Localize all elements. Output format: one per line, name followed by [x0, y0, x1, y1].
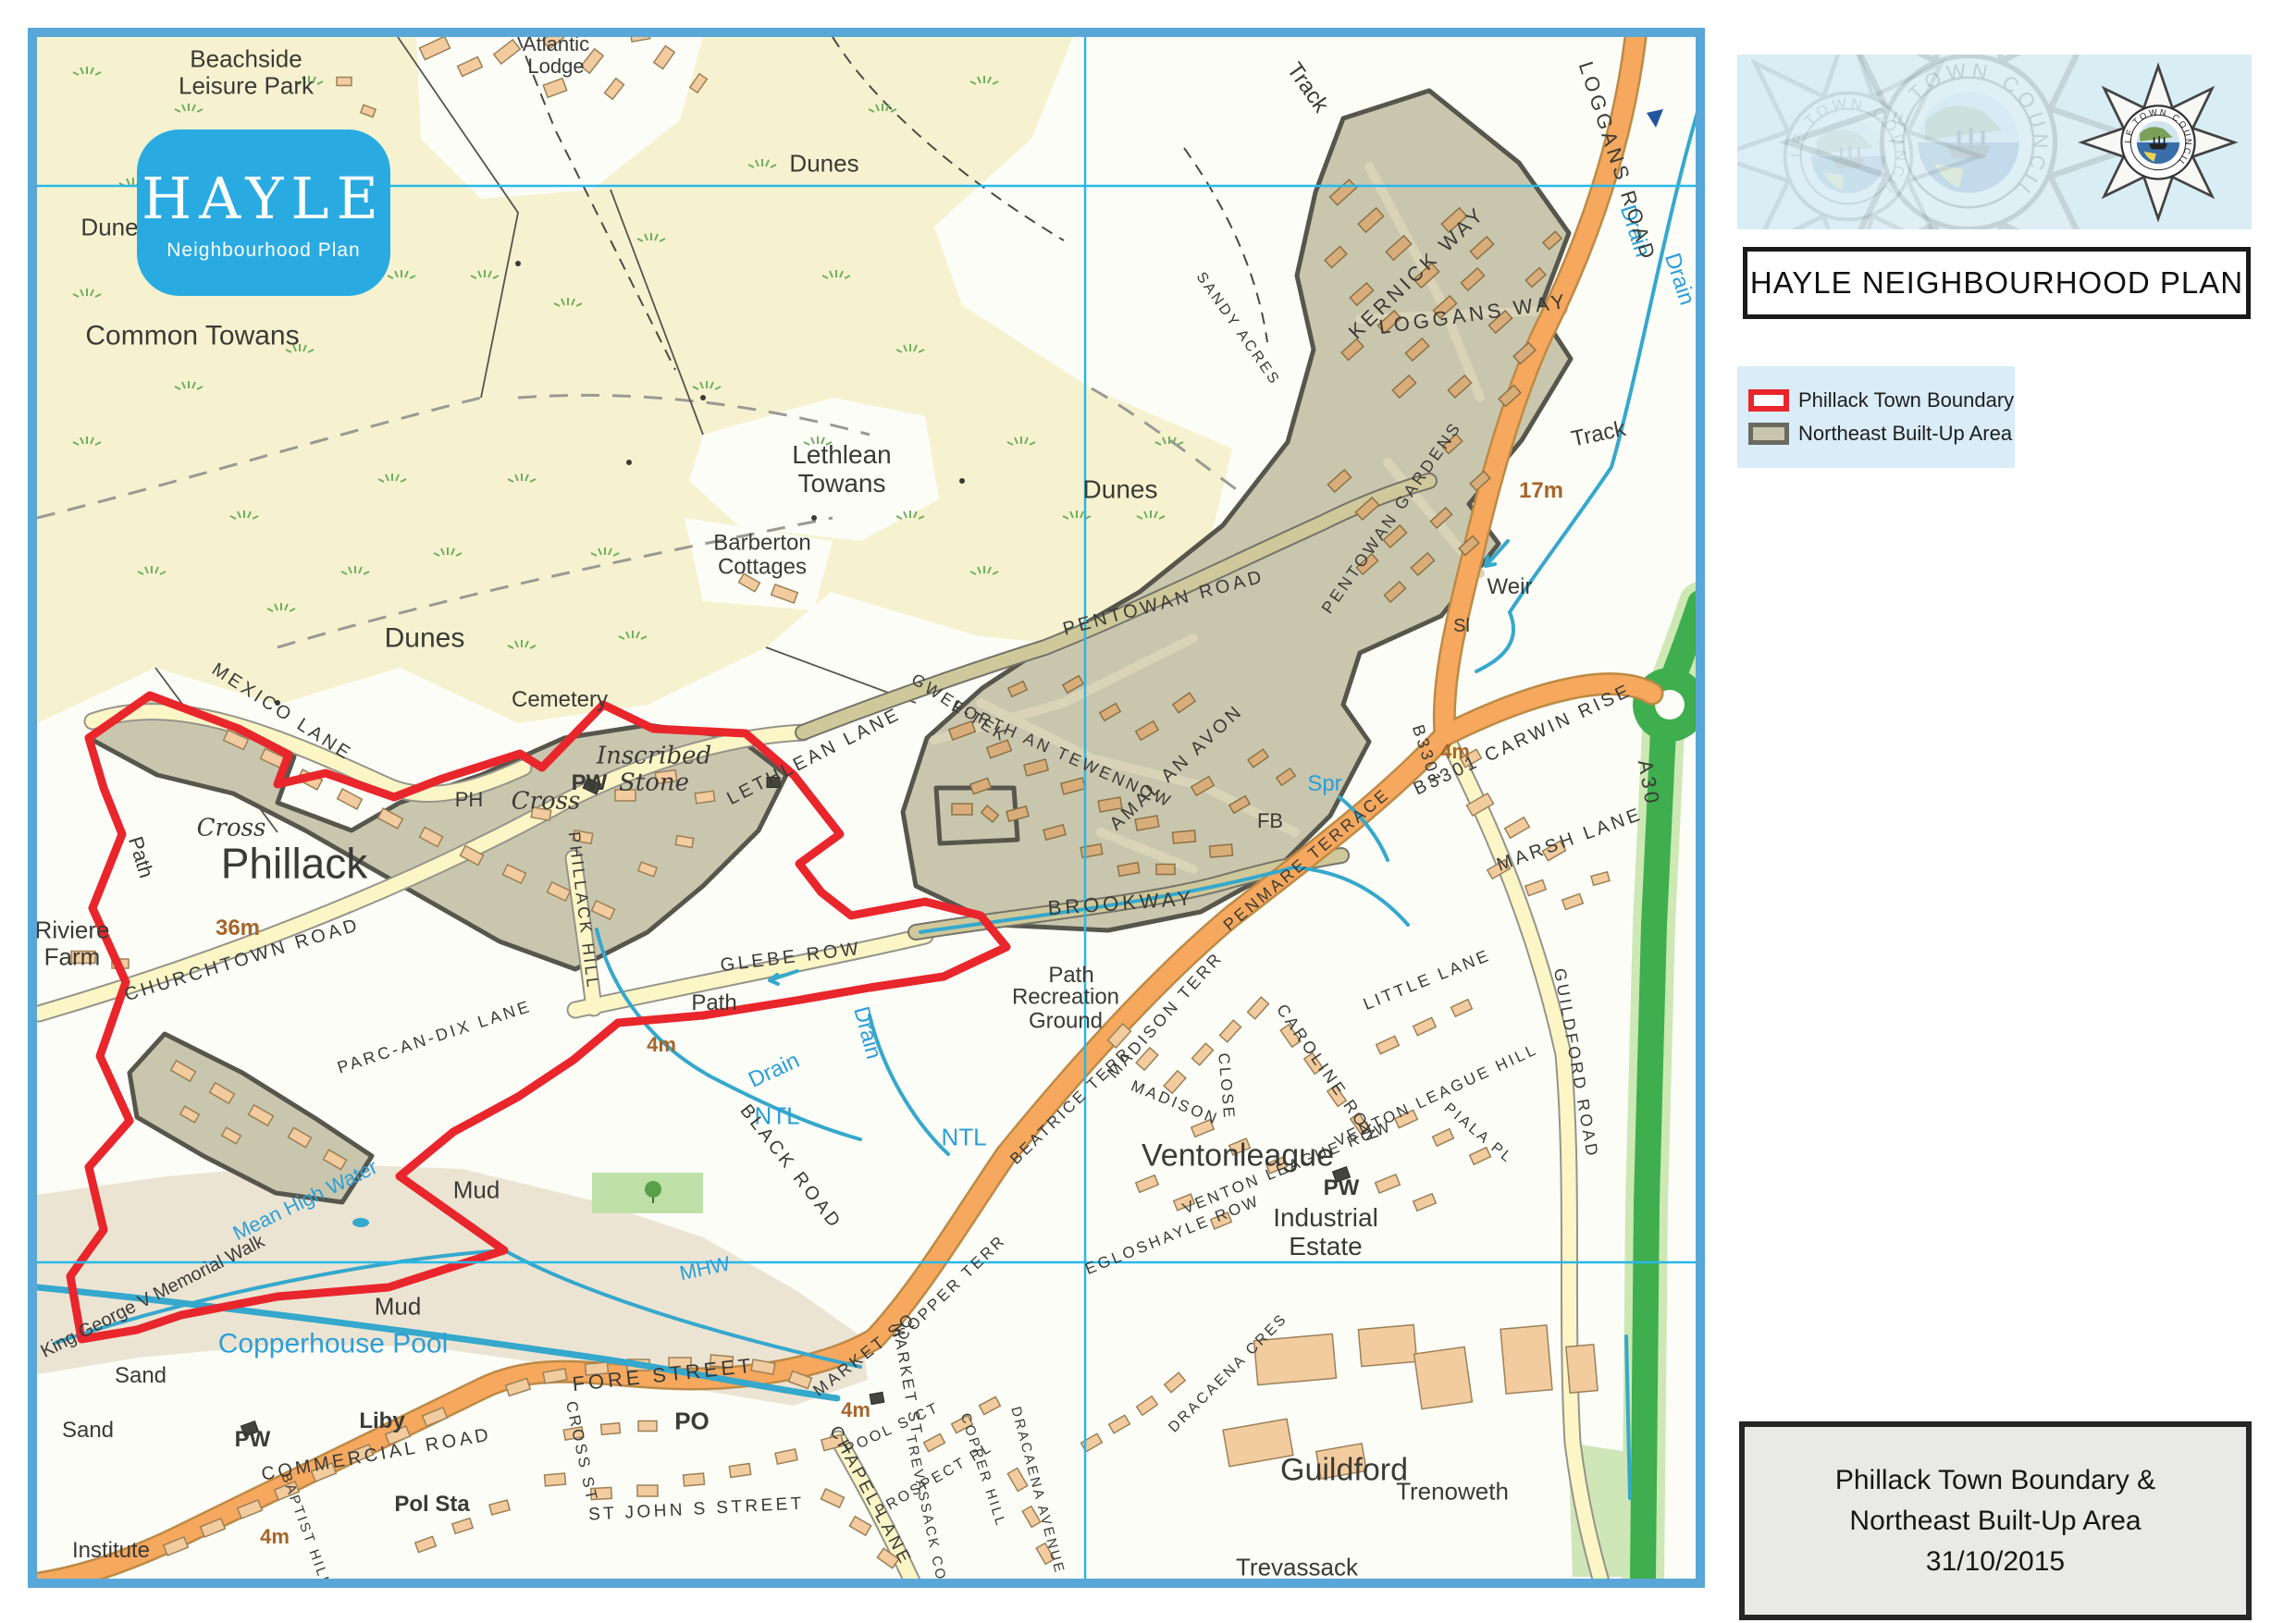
map-label: Drain	[1660, 251, 1696, 309]
map-label: Lethlean Towans	[792, 441, 891, 498]
map-label: FORE STREET	[571, 1355, 755, 1396]
map-label: 36m	[216, 916, 260, 941]
map-label: PENMARE TERRACE	[1220, 785, 1394, 935]
map-label: Inscribed Stone	[597, 743, 711, 795]
map-label: A30	[1634, 758, 1664, 808]
map-label: Industrial Estate	[1273, 1204, 1378, 1261]
map-label: Drain	[745, 1049, 803, 1093]
map-label: 4m	[647, 1034, 676, 1056]
map-label: CROSS ST	[562, 1400, 599, 1505]
map-label: Institute	[72, 1539, 150, 1563]
map-label: Track	[1281, 58, 1333, 117]
map-label: ST JOHN S STREET	[588, 1494, 806, 1525]
boundary-swatch-icon	[1748, 389, 1789, 412]
map-label: Mud	[453, 1177, 500, 1204]
footer-line: Phillack Town Boundary &	[1835, 1460, 2155, 1501]
legend-label: Phillack Town Boundary	[1798, 388, 2014, 412]
hayle-neighbourhood-plan-logo: HAYLE Neighbourhood Plan	[137, 129, 390, 296]
map-label: DRACAENA CRES	[1166, 1310, 1291, 1436]
map-label: 4m	[260, 1526, 290, 1548]
map-label: BROOKWAY	[1047, 887, 1195, 919]
map-label: Riviere Farm	[37, 916, 109, 969]
map-label: PENTOWAN GARDENS	[1319, 418, 1466, 617]
map-label: LITTLE LANE	[1361, 946, 1493, 1014]
map-label: Trevassack	[1236, 1555, 1358, 1579]
map-label: Recreation Ground	[1012, 986, 1119, 1035]
map-label: 4m	[841, 1399, 870, 1421]
map-label: Sl	[1453, 616, 1470, 636]
map-label: Barberton Cottages	[713, 532, 810, 581]
map-label: Path	[691, 991, 736, 1015]
map-label: Common Towans	[85, 321, 299, 351]
map-label: Drain	[848, 1004, 885, 1062]
town-council-banner	[1737, 55, 2252, 229]
map-label: Dunes	[385, 623, 465, 654]
map-label: MHW	[678, 1252, 733, 1285]
map-label: NTL	[941, 1125, 986, 1151]
map-label: Spr	[1307, 772, 1341, 796]
map-legend: Phillack Town Boundary Northeast Built-U…	[1737, 366, 2015, 468]
map-label: GUILDFORD ROAD	[1549, 967, 1601, 1161]
map-label: Liby	[359, 1409, 404, 1433]
map-label: Cross	[512, 789, 581, 816]
legend-item-boundary: Phillack Town Boundary	[1748, 388, 2015, 412]
map-label: Dunes	[789, 151, 858, 178]
map-label: LOGGANS ROAD	[1574, 59, 1660, 264]
map-label: AMAL AN AVON	[1105, 701, 1247, 835]
map-label: Dunes	[1083, 476, 1158, 505]
map-label: FB	[1257, 810, 1283, 832]
map-label: Copperhouse Pool	[218, 1329, 449, 1359]
map-label: Atlantic Lodge	[523, 37, 589, 78]
map-label: Cemetery	[512, 688, 608, 712]
map-label: LETHLEAN LANE	[723, 704, 904, 809]
map-label: Trenoweth	[1396, 1479, 1509, 1506]
map-label: MEXICO LANE	[208, 659, 356, 765]
map-label: Path	[124, 834, 157, 880]
map-label: Pol Sta	[394, 1493, 469, 1517]
map-label: Track	[1569, 417, 1627, 452]
map-label: PH	[455, 789, 484, 811]
legend-item-builtup: Northeast Built-Up Area	[1748, 422, 2015, 446]
map-label: Cross	[197, 816, 266, 842]
map-label: DRACAENA AVENUE	[1007, 1406, 1067, 1577]
sheet-title: HAYLE NEIGHBOURHOOD PLAN	[1743, 247, 2251, 319]
map-label: SANDY ACRES	[1192, 269, 1283, 388]
banner-graphic	[1737, 55, 2252, 229]
map-label: GLEBE ROW	[719, 939, 862, 977]
page: { "palette":{ "frame_blue":"#58a7d8","gr…	[0, 0, 2296, 1623]
logo-title: HAYLE	[137, 165, 390, 232]
map-label: 17m	[1519, 479, 1563, 503]
map-label: PENTOWAN ROAD	[1061, 566, 1267, 639]
map-label: Beachside Leisure Park	[179, 45, 314, 98]
map-label: Weir	[1487, 575, 1533, 599]
map-label: Sand	[62, 1419, 114, 1443]
map-label: PIALA PL	[1440, 1100, 1515, 1167]
map-label: Mean High Water	[229, 1156, 381, 1245]
map-label: Sand	[115, 1364, 167, 1388]
sheet-footer: Phillack Town Boundary & Northeast Built…	[1739, 1421, 2252, 1620]
map-label: MARSH LANE	[1494, 804, 1646, 875]
footer-line: Northeast Built-Up Area	[1849, 1501, 2141, 1542]
map-label: PHILLACK HILL	[564, 830, 602, 990]
map-label: PO	[674, 1408, 710, 1435]
map-label: Mud	[375, 1294, 422, 1321]
map-label: Phillack	[221, 841, 368, 888]
map-label: BEATRICE TERR	[1007, 1044, 1135, 1168]
map-label: PW	[235, 1428, 271, 1452]
logo-subtitle: Neighbourhood Plan	[137, 240, 390, 262]
map-label: MADISON	[1129, 1077, 1221, 1128]
map-label: EGLOSHAYLE ROW	[1083, 1192, 1263, 1278]
map-label: PARC-AN-DIX LANE	[336, 998, 535, 1078]
sheet-title-text: HAYLE NEIGHBOURHOOD PLAN	[1750, 265, 2243, 301]
map-label: PW	[1324, 1176, 1360, 1200]
footer-line: 31/10/2015	[1926, 1542, 2065, 1582]
legend-label: Northeast Built-Up Area	[1798, 422, 2012, 446]
builtup-swatch-icon	[1748, 423, 1789, 445]
map-label: Guildford	[1280, 1453, 1408, 1487]
